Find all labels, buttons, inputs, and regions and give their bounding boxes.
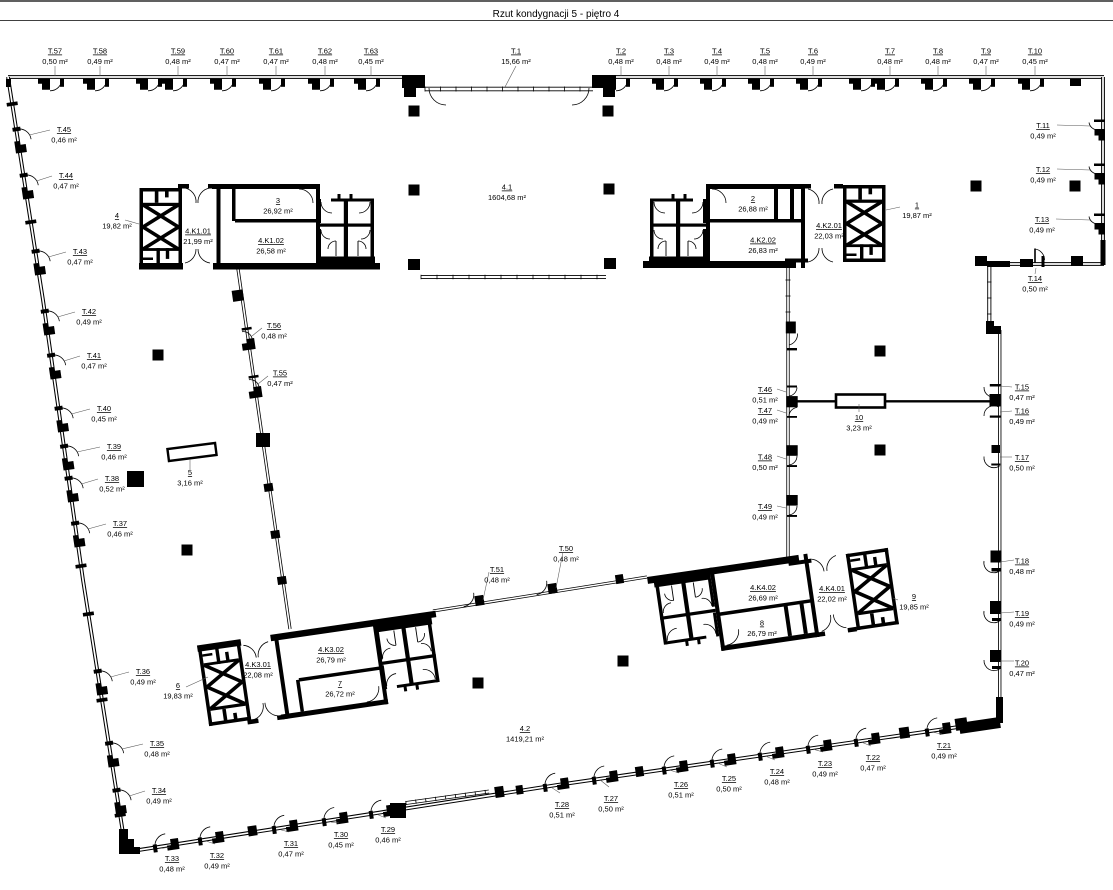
svg-text:7: 7 bbox=[338, 679, 342, 688]
svg-text:T.39: T.39 bbox=[107, 442, 121, 451]
svg-text:0,50 m²: 0,50 m² bbox=[598, 805, 624, 814]
svg-text:T.44: T.44 bbox=[59, 171, 73, 180]
svg-text:0,49 m²: 0,49 m² bbox=[931, 752, 957, 761]
svg-text:T.31: T.31 bbox=[284, 839, 298, 848]
svg-text:0,47 m²: 0,47 m² bbox=[81, 362, 107, 371]
svg-text:9: 9 bbox=[912, 592, 916, 601]
svg-text:T.7: T.7 bbox=[885, 47, 895, 56]
svg-text:0,47 m²: 0,47 m² bbox=[263, 57, 289, 66]
svg-text:0,49 m²: 0,49 m² bbox=[204, 862, 230, 871]
svg-text:T.9: T.9 bbox=[981, 47, 991, 56]
svg-text:T.59: T.59 bbox=[171, 47, 185, 56]
svg-text:T.16: T.16 bbox=[1015, 407, 1029, 416]
svg-text:0,49 m²: 0,49 m² bbox=[704, 57, 730, 66]
svg-text:0,51 m²: 0,51 m² bbox=[668, 791, 694, 800]
svg-text:0,49 m²: 0,49 m² bbox=[130, 678, 156, 687]
svg-text:4.K2.02: 4.K2.02 bbox=[750, 236, 776, 245]
svg-text:T.57: T.57 bbox=[48, 47, 62, 56]
svg-text:0,50 m²: 0,50 m² bbox=[752, 463, 778, 472]
svg-text:0,49 m²: 0,49 m² bbox=[87, 57, 113, 66]
svg-text:T.43: T.43 bbox=[73, 247, 87, 256]
svg-text:T.20: T.20 bbox=[1015, 659, 1029, 668]
svg-text:4.K1.02: 4.K1.02 bbox=[258, 236, 284, 245]
svg-text:4.K3.01: 4.K3.01 bbox=[245, 660, 271, 669]
svg-text:4: 4 bbox=[115, 211, 119, 220]
svg-text:0,51 m²: 0,51 m² bbox=[752, 396, 778, 405]
svg-text:19,85 m²: 19,85 m² bbox=[899, 603, 929, 612]
svg-text:4.K2.01: 4.K2.01 bbox=[816, 221, 842, 230]
svg-text:19,87 m²: 19,87 m² bbox=[902, 211, 932, 220]
svg-text:T.17: T.17 bbox=[1015, 453, 1029, 462]
svg-text:0,48 m²: 0,48 m² bbox=[764, 778, 790, 787]
svg-text:T.61: T.61 bbox=[269, 47, 283, 56]
svg-text:0,49 m²: 0,49 m² bbox=[752, 417, 778, 426]
svg-text:0,47 m²: 0,47 m² bbox=[214, 57, 240, 66]
svg-text:0,47 m²: 0,47 m² bbox=[53, 182, 79, 191]
svg-text:4.K4.01: 4.K4.01 bbox=[819, 584, 845, 593]
svg-text:0,50 m²: 0,50 m² bbox=[1009, 464, 1035, 473]
svg-text:0,48 m²: 0,48 m² bbox=[877, 57, 903, 66]
svg-text:T.21: T.21 bbox=[937, 741, 951, 750]
svg-text:0,47 m²: 0,47 m² bbox=[973, 57, 999, 66]
svg-text:T.46: T.46 bbox=[758, 385, 772, 394]
svg-text:4.K3.02: 4.K3.02 bbox=[318, 645, 344, 654]
svg-text:0,46 m²: 0,46 m² bbox=[101, 453, 127, 462]
svg-text:0,48 m²: 0,48 m² bbox=[159, 865, 185, 874]
svg-text:0,49 m²: 0,49 m² bbox=[1030, 132, 1056, 141]
svg-text:0,48 m²: 0,48 m² bbox=[144, 750, 170, 759]
svg-text:0,45 m²: 0,45 m² bbox=[1022, 57, 1048, 66]
svg-text:T.36: T.36 bbox=[136, 667, 150, 676]
svg-text:T.15: T.15 bbox=[1015, 383, 1029, 392]
svg-text:1419,21 m²: 1419,21 m² bbox=[506, 735, 544, 744]
svg-text:4.K4.02: 4.K4.02 bbox=[750, 583, 776, 592]
svg-text:T.14: T.14 bbox=[1028, 274, 1042, 283]
svg-text:26,83 m²: 26,83 m² bbox=[748, 246, 778, 255]
svg-text:0,47 m²: 0,47 m² bbox=[1009, 393, 1035, 402]
svg-text:T.11: T.11 bbox=[1036, 121, 1050, 130]
svg-text:0,45 m²: 0,45 m² bbox=[358, 57, 384, 66]
svg-text:T.41: T.41 bbox=[87, 351, 101, 360]
svg-text:0,46 m²: 0,46 m² bbox=[107, 530, 133, 539]
svg-text:19,82 m²: 19,82 m² bbox=[102, 222, 132, 231]
svg-text:3,23 m²: 3,23 m² bbox=[846, 424, 872, 433]
svg-text:0,48 m²: 0,48 m² bbox=[925, 57, 951, 66]
svg-text:Rzut kondygnacji 5 - piętro 4: Rzut kondygnacji 5 - piętro 4 bbox=[493, 9, 620, 20]
svg-text:8: 8 bbox=[760, 619, 764, 628]
svg-text:0,47 m²: 0,47 m² bbox=[267, 379, 293, 388]
svg-text:21,99 m²: 21,99 m² bbox=[183, 237, 213, 246]
svg-text:T.23: T.23 bbox=[818, 759, 832, 768]
svg-text:T.30: T.30 bbox=[334, 830, 348, 839]
svg-text:0,49 m²: 0,49 m² bbox=[752, 513, 778, 522]
svg-text:T.49: T.49 bbox=[758, 502, 772, 511]
svg-text:T.45: T.45 bbox=[57, 125, 71, 134]
svg-text:1604,68 m²: 1604,68 m² bbox=[488, 193, 526, 202]
svg-text:4.K1.01: 4.K1.01 bbox=[185, 227, 211, 236]
svg-text:T.51: T.51 bbox=[490, 565, 504, 574]
svg-text:T.22: T.22 bbox=[866, 753, 880, 762]
svg-text:T.2: T.2 bbox=[616, 47, 626, 56]
svg-text:T.32: T.32 bbox=[210, 851, 224, 860]
svg-text:0,47 m²: 0,47 m² bbox=[1009, 669, 1035, 678]
svg-text:3,16 m²: 3,16 m² bbox=[177, 479, 203, 488]
svg-text:10: 10 bbox=[855, 413, 863, 422]
svg-text:T.40: T.40 bbox=[97, 404, 111, 413]
svg-text:T.6: T.6 bbox=[808, 47, 818, 56]
svg-text:T.63: T.63 bbox=[364, 47, 378, 56]
svg-text:0,46 m²: 0,46 m² bbox=[51, 136, 77, 145]
svg-text:0,49 m²: 0,49 m² bbox=[1030, 176, 1056, 185]
svg-text:0,49 m²: 0,49 m² bbox=[800, 57, 826, 66]
svg-text:0,48 m²: 0,48 m² bbox=[608, 57, 634, 66]
svg-text:1: 1 bbox=[915, 201, 919, 210]
svg-text:26,69 m²: 26,69 m² bbox=[748, 594, 778, 603]
svg-text:0,47 m²: 0,47 m² bbox=[67, 258, 93, 267]
svg-text:0,52 m²: 0,52 m² bbox=[99, 485, 125, 494]
svg-text:0,49 m²: 0,49 m² bbox=[812, 770, 838, 779]
svg-text:T.4: T.4 bbox=[712, 47, 722, 56]
svg-text:0,49 m²: 0,49 m² bbox=[146, 797, 172, 806]
svg-text:T.28: T.28 bbox=[555, 800, 569, 809]
svg-text:0,50 m²: 0,50 m² bbox=[716, 785, 742, 794]
svg-text:T.58: T.58 bbox=[93, 47, 107, 56]
svg-text:15,66 m²: 15,66 m² bbox=[501, 57, 531, 66]
svg-text:T.19: T.19 bbox=[1015, 609, 1029, 618]
svg-text:4.2: 4.2 bbox=[520, 724, 530, 733]
svg-text:T.26: T.26 bbox=[674, 780, 688, 789]
svg-text:0,49 m²: 0,49 m² bbox=[1009, 620, 1035, 629]
svg-text:0,49 m²: 0,49 m² bbox=[1029, 226, 1055, 235]
svg-text:T.13: T.13 bbox=[1035, 215, 1049, 224]
svg-text:22,02 m²: 22,02 m² bbox=[817, 595, 847, 604]
svg-text:0,50 m²: 0,50 m² bbox=[42, 57, 68, 66]
svg-text:T.1: T.1 bbox=[511, 47, 521, 56]
svg-text:T.18: T.18 bbox=[1015, 557, 1029, 566]
svg-text:T.62: T.62 bbox=[318, 47, 332, 56]
svg-text:T.24: T.24 bbox=[770, 767, 784, 776]
svg-text:26,92 m²: 26,92 m² bbox=[263, 207, 293, 216]
svg-text:T.37: T.37 bbox=[113, 519, 127, 528]
svg-text:T.60: T.60 bbox=[220, 47, 234, 56]
svg-text:0,49 m²: 0,49 m² bbox=[1009, 417, 1035, 426]
svg-text:0,51 m²: 0,51 m² bbox=[549, 811, 575, 820]
svg-text:26,88 m²: 26,88 m² bbox=[738, 205, 768, 214]
svg-text:4.1: 4.1 bbox=[502, 183, 512, 192]
svg-text:T.5: T.5 bbox=[760, 47, 770, 56]
svg-text:0,48 m²: 0,48 m² bbox=[553, 555, 579, 564]
svg-text:6: 6 bbox=[176, 681, 180, 690]
svg-text:T.56: T.56 bbox=[267, 321, 281, 330]
svg-text:0,48 m²: 0,48 m² bbox=[752, 57, 778, 66]
svg-text:22,03 m²: 22,03 m² bbox=[814, 232, 844, 241]
svg-text:T.47: T.47 bbox=[758, 406, 772, 415]
svg-text:0,48 m²: 0,48 m² bbox=[312, 57, 338, 66]
svg-text:0,48 m²: 0,48 m² bbox=[165, 57, 191, 66]
svg-text:T.55: T.55 bbox=[273, 369, 287, 378]
svg-text:T.42: T.42 bbox=[82, 307, 96, 316]
svg-text:0,46 m²: 0,46 m² bbox=[375, 836, 401, 845]
svg-text:0,49 m²: 0,49 m² bbox=[76, 318, 102, 327]
svg-text:0,45 m²: 0,45 m² bbox=[328, 841, 354, 850]
svg-text:0,47 m²: 0,47 m² bbox=[278, 850, 304, 859]
svg-text:T.29: T.29 bbox=[381, 825, 395, 834]
svg-text:T.33: T.33 bbox=[165, 854, 179, 863]
svg-text:T.3: T.3 bbox=[664, 47, 674, 56]
svg-text:26,79 m²: 26,79 m² bbox=[316, 656, 346, 665]
svg-text:0,48 m²: 0,48 m² bbox=[261, 332, 287, 341]
svg-text:0,47 m²: 0,47 m² bbox=[860, 764, 886, 773]
svg-text:T.50: T.50 bbox=[559, 544, 573, 553]
svg-text:0,50 m²: 0,50 m² bbox=[1022, 285, 1048, 294]
svg-text:0,48 m²: 0,48 m² bbox=[1009, 567, 1035, 576]
svg-text:19,83 m²: 19,83 m² bbox=[163, 692, 193, 701]
svg-text:T.27: T.27 bbox=[604, 794, 618, 803]
svg-text:0,45 m²: 0,45 m² bbox=[91, 415, 117, 424]
svg-text:T.38: T.38 bbox=[105, 474, 119, 483]
svg-text:26,58 m²: 26,58 m² bbox=[256, 247, 286, 256]
svg-text:T.12: T.12 bbox=[1036, 165, 1050, 174]
svg-text:T.25: T.25 bbox=[722, 774, 736, 783]
svg-text:2: 2 bbox=[751, 194, 755, 203]
svg-text:T.10: T.10 bbox=[1028, 47, 1042, 56]
svg-text:T.35: T.35 bbox=[150, 739, 164, 748]
svg-text:T.34: T.34 bbox=[152, 786, 166, 795]
svg-text:T.8: T.8 bbox=[933, 47, 943, 56]
svg-text:26,79 m²: 26,79 m² bbox=[747, 629, 777, 638]
svg-text:T.48: T.48 bbox=[758, 453, 772, 462]
svg-text:0,48 m²: 0,48 m² bbox=[656, 57, 682, 66]
svg-text:22,08 m²: 22,08 m² bbox=[243, 671, 273, 680]
svg-text:3: 3 bbox=[276, 196, 280, 205]
svg-text:26,72 m²: 26,72 m² bbox=[325, 690, 355, 699]
